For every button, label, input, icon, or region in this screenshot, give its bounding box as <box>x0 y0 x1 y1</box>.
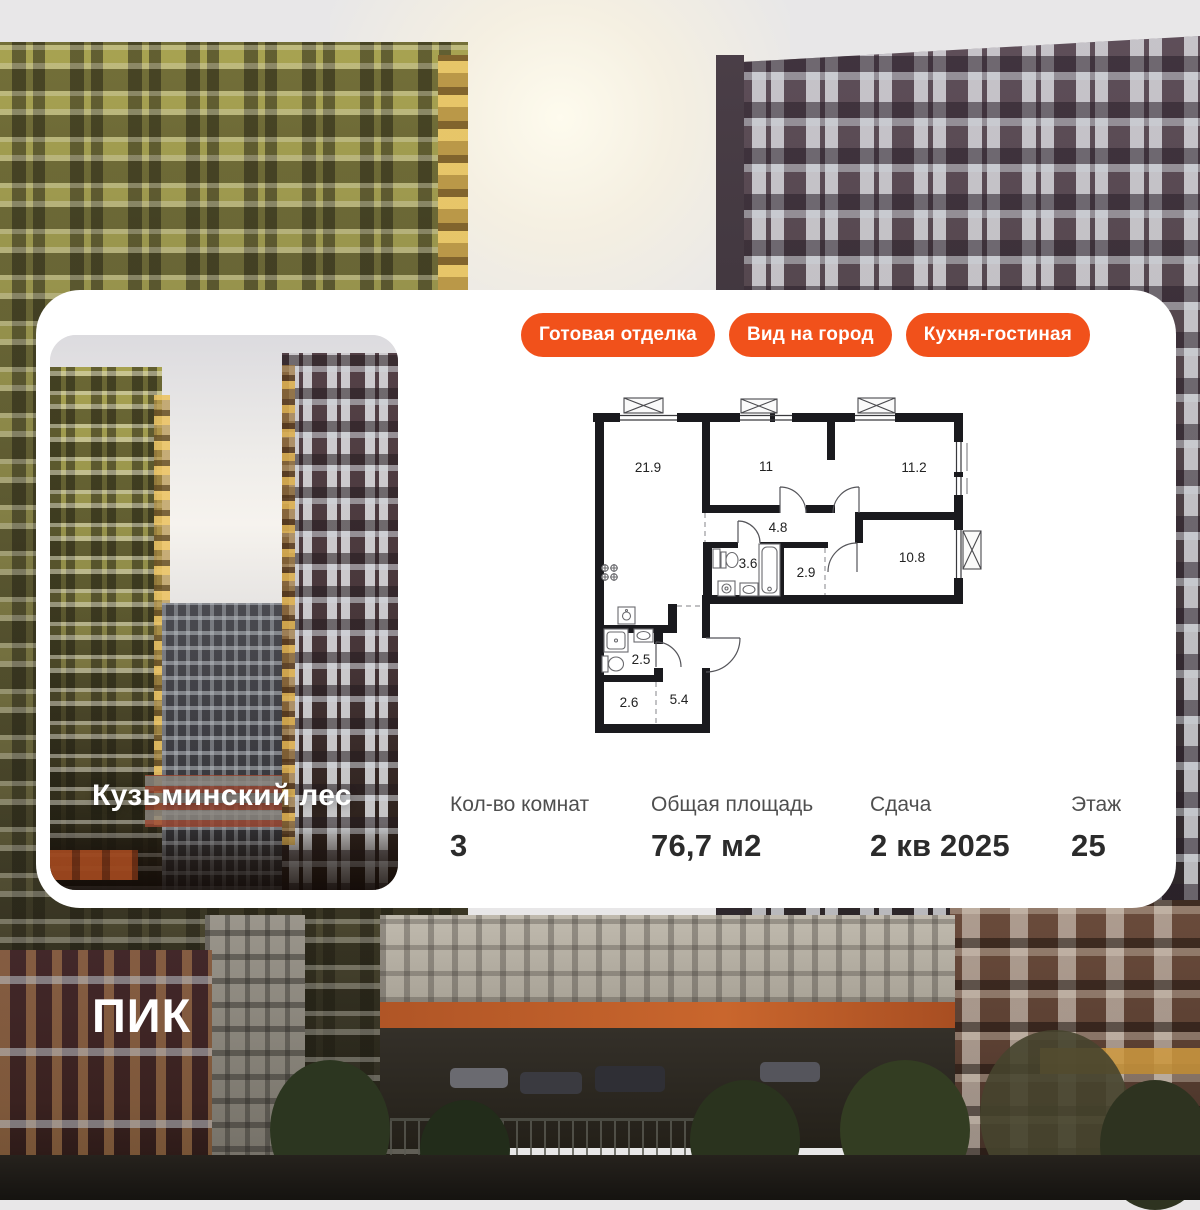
badge-kitchen-living-label: Кухня-гостиная <box>924 324 1072 346</box>
stat-area-label: Общая площадь <box>651 793 813 817</box>
small-sink-icon <box>740 583 758 596</box>
stat-delivery-value: 2 кв 2025 <box>870 828 1010 864</box>
badge-finishing-label: Готовая отделка <box>539 324 697 346</box>
stat-delivery-label: Сдача <box>870 793 1010 817</box>
ground <box>0 1155 1200 1200</box>
stat-rooms-value: 3 <box>450 828 589 864</box>
room-label-entry2: 5.4 <box>670 692 689 707</box>
listing-card[interactable]: Готовая отделка Вид на город Кухня-гости… <box>36 290 1176 908</box>
badge-kitchen-living[interactable]: Кухня-гостиная <box>906 313 1090 357</box>
thumb-building-maroon-balconies <box>282 365 295 845</box>
project-name: Кузьминский лес <box>92 779 352 813</box>
room-label-wc: 2.5 <box>632 652 651 667</box>
feature-badges: Готовая отделка Вид на город Кухня-гости… <box>521 313 1090 357</box>
project-thumbnail[interactable]: Кузьминский лес <box>50 335 398 890</box>
badge-city-view-label: Вид на город <box>747 324 874 346</box>
room-label-bedroom3: 10.8 <box>899 550 925 565</box>
shower-icon <box>604 629 628 652</box>
car <box>760 1062 820 1082</box>
room-label-wardrobe: 2.9 <box>797 565 816 580</box>
badge-city-view[interactable]: Вид на город <box>729 313 892 357</box>
stat-rooms: Кол-во комнат 3 <box>450 793 589 864</box>
car <box>595 1066 665 1092</box>
toilet2-icon <box>602 656 624 672</box>
car <box>450 1068 508 1088</box>
kitchen-sink-icon <box>618 607 635 624</box>
stat-floor-value: 25 <box>1071 828 1121 864</box>
car <box>520 1072 582 1094</box>
stat-area: Общая площадь 76,7 м2 <box>651 793 813 864</box>
room-label-bedroom2: 11.2 <box>901 460 926 475</box>
room-label-hall: 4.8 <box>769 520 788 535</box>
room-label-bedroom1: 11 <box>759 459 773 474</box>
room-label-living: 21.9 <box>635 460 661 475</box>
stat-floor-label: Этаж <box>1071 793 1121 817</box>
stat-floor: Этаж 25 <box>1071 793 1121 864</box>
developer-logo: ПИК <box>92 988 191 1043</box>
room-label-entry1: 2.6 <box>620 695 639 710</box>
room-label-bathroom: 3.6 <box>739 556 758 571</box>
washbasin2-icon <box>634 629 653 642</box>
badge-finishing[interactable]: Готовая отделка <box>521 313 715 357</box>
background-orange-band-mid <box>380 1002 955 1028</box>
washbasin-icon <box>713 549 720 568</box>
stat-delivery: Сдача 2 кв 2025 <box>870 793 1010 864</box>
floorplan-doors <box>656 487 859 672</box>
floorplan: 21.9 11 11.2 4.8 3.6 2.9 10.8 2.5 2.6 5.… <box>575 390 995 750</box>
stat-rooms-label: Кол-во комнат <box>450 793 589 817</box>
stat-area-value: 76,7 м2 <box>651 828 813 864</box>
washing-machine-icon <box>718 581 735 596</box>
toilet-icon <box>721 552 738 568</box>
bathtub-icon <box>759 544 780 596</box>
thumb-storefront <box>50 850 138 880</box>
